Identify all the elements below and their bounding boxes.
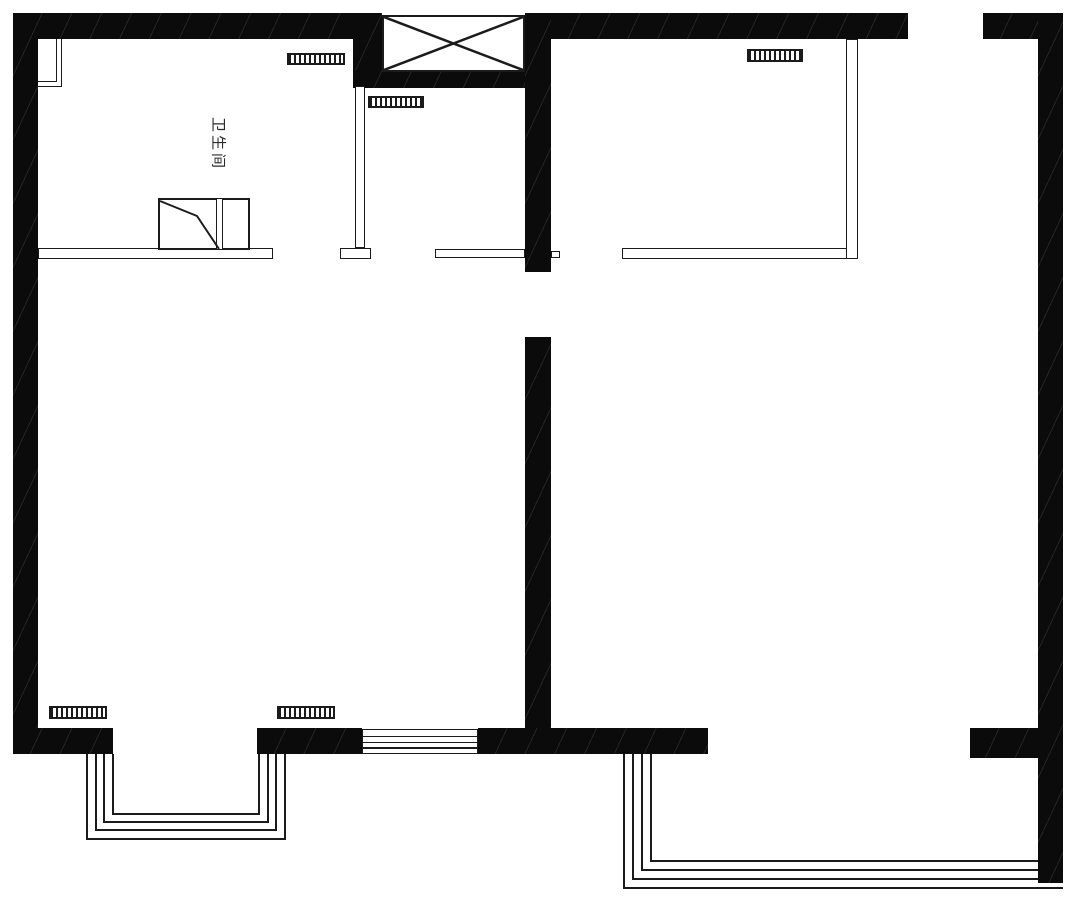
wall-band-under-shaft — [353, 70, 551, 88]
radiator-grille-hall — [368, 96, 424, 108]
wall-bottom-mid-left — [257, 728, 362, 754]
radiator-grille-bedroom — [747, 49, 803, 62]
bay-window-line-4 — [112, 754, 260, 815]
radiator-grille-living-2 — [277, 706, 335, 719]
balcony-glazing-line-4 — [650, 754, 1038, 862]
sliding-door-track-1 — [363, 736, 477, 738]
bedroom-south-wall — [622, 248, 858, 259]
hall-thin-wall-foot — [340, 248, 371, 259]
wall-top-right — [551, 13, 908, 39]
corner-duct-inner — [38, 39, 57, 82]
bedroom-west-wall — [846, 39, 858, 259]
sliding-door-track-3 — [363, 747, 477, 749]
wall-bottom-left — [13, 728, 113, 754]
sliding-door-track-2 — [363, 742, 477, 744]
wall-central-column — [525, 13, 551, 272]
hall-thin-wall-east — [435, 249, 525, 258]
wall-right — [1038, 13, 1063, 883]
wall-bottom-mid-right — [478, 728, 708, 754]
bathroom-label: 卫生间 — [209, 117, 230, 171]
shaft-x-box — [382, 15, 525, 72]
column-stub — [551, 251, 560, 258]
radiator-grille-living-1 — [49, 706, 107, 719]
hall-thin-wall-vertical — [355, 86, 365, 248]
wall-top-left — [13, 13, 353, 39]
bathroom-folding-door-leaf — [158, 198, 250, 250]
wall-left — [13, 13, 38, 754]
floor-plan: 卫生间 — [0, 0, 1080, 903]
radiator-grille-bathroom — [287, 53, 345, 65]
shaft-x-diagonals — [384, 17, 523, 70]
sliding-door — [362, 729, 478, 754]
wall-central-lower — [525, 337, 551, 754]
